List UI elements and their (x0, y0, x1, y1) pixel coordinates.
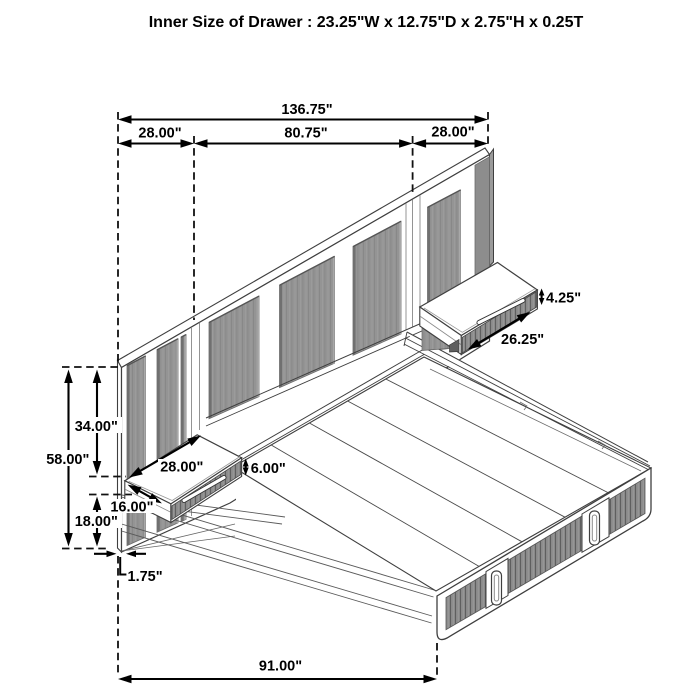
svg-text:4.25": 4.25" (546, 291, 581, 307)
svg-text:Inner Size of Drawer : 23.25"W: Inner Size of Drawer : 23.25"W x 12.75"D… (149, 14, 584, 31)
svg-text:6.00": 6.00" (251, 461, 286, 477)
svg-text:16.00": 16.00" (110, 500, 153, 516)
svg-text:80.75": 80.75" (284, 126, 327, 142)
svg-text:34.00": 34.00" (75, 419, 118, 435)
svg-text:26.25": 26.25" (501, 332, 544, 348)
svg-text:91.00": 91.00" (259, 659, 302, 675)
svg-text:18.00": 18.00" (75, 514, 118, 530)
svg-text:58.00": 58.00" (46, 452, 89, 468)
svg-text:136.75": 136.75" (281, 102, 332, 118)
svg-text:28.00": 28.00" (138, 126, 181, 142)
svg-text:28.00": 28.00" (160, 460, 203, 476)
svg-text:1.75": 1.75" (128, 569, 163, 585)
svg-text:28.00": 28.00" (431, 125, 474, 141)
